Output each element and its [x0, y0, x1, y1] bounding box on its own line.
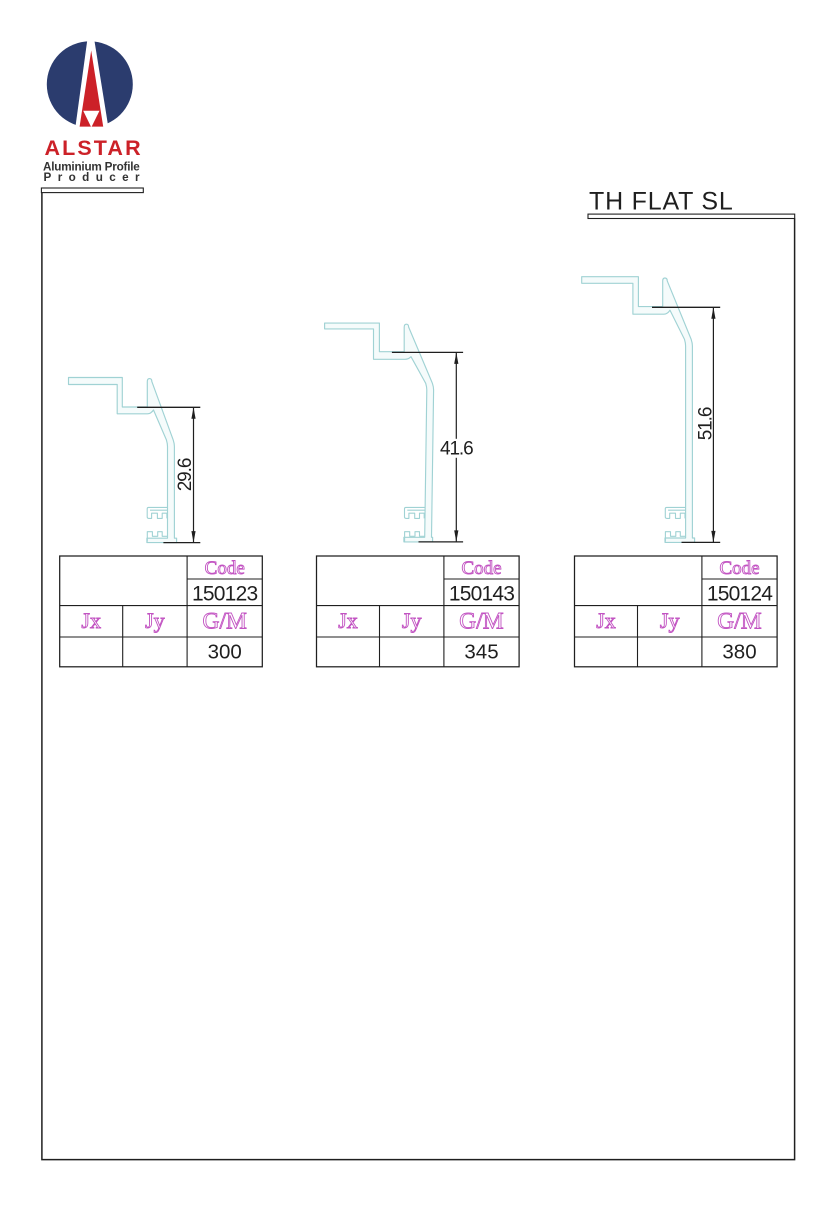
svg-text:G/M: G/M: [202, 609, 247, 635]
svg-text:Jx: Jx: [338, 608, 358, 633]
svg-text:Jy: Jy: [145, 608, 165, 633]
svg-text:Code: Code: [205, 558, 245, 579]
svg-text:Jy: Jy: [660, 608, 680, 633]
svg-text:Code: Code: [461, 558, 501, 579]
svg-text:29.6: 29.6: [175, 458, 196, 491]
svg-text:150123: 150123: [192, 583, 257, 606]
svg-text:Code: Code: [719, 558, 759, 579]
svg-text:150143: 150143: [449, 583, 514, 606]
svg-text:G/M: G/M: [717, 609, 762, 635]
svg-text:Producer: Producer: [44, 171, 147, 184]
svg-text:41.6: 41.6: [440, 438, 473, 459]
svg-text:Jx: Jx: [81, 608, 101, 633]
svg-text:G/M: G/M: [459, 609, 504, 635]
svg-text:150124: 150124: [707, 583, 773, 606]
svg-text:Jy: Jy: [402, 608, 422, 633]
svg-text:Jx: Jx: [596, 608, 616, 633]
svg-text:300: 300: [208, 641, 242, 664]
svg-text:345: 345: [464, 641, 498, 664]
svg-text:TH FLAT SL: TH FLAT SL: [589, 188, 734, 216]
svg-text:380: 380: [722, 641, 756, 664]
svg-text:ALSTAR: ALSTAR: [45, 136, 143, 160]
svg-text:51.6: 51.6: [696, 407, 717, 440]
